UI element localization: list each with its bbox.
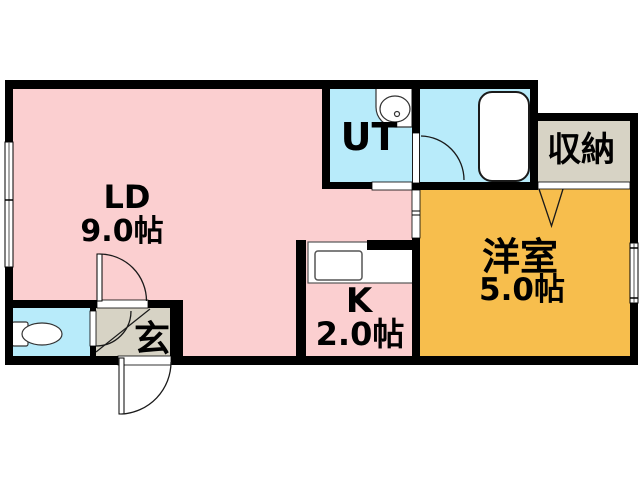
label-entrance: 玄 xyxy=(134,319,170,360)
front-door-leaf xyxy=(119,358,124,414)
floor-plan-canvas: LD 9.0帖 UT 収納 洋室 5.0帖 K 2.0帖 玄 xyxy=(0,0,640,480)
wall-kitchen-left xyxy=(296,240,306,365)
bathroom-door-leaf xyxy=(413,133,420,183)
room-living-dining-bottom-strip xyxy=(182,300,298,358)
utility-door-opening xyxy=(372,182,412,190)
window-left xyxy=(5,142,13,267)
wall-utility-bottom xyxy=(322,182,372,189)
label-storage: 収納 xyxy=(547,130,615,170)
window-right xyxy=(630,243,638,303)
label-utility: UT xyxy=(341,115,398,159)
wall-bottom xyxy=(5,356,638,365)
wall-storage-top xyxy=(530,113,638,121)
label-living-dining-size: 9.0帖 xyxy=(80,214,163,249)
front-door-swing-arc xyxy=(122,362,172,414)
kitchen-sink xyxy=(315,251,362,280)
wall-kitchen-top xyxy=(367,240,420,250)
wall-toilet-top xyxy=(5,300,97,308)
toilet-door-leaf xyxy=(90,311,96,346)
wall-step-vertical xyxy=(530,80,538,190)
toilet-bowl xyxy=(22,323,62,345)
wall-top xyxy=(5,80,538,89)
hallway-area xyxy=(13,185,413,245)
wall-utility-left xyxy=(322,80,330,189)
floor-plan: LD 9.0帖 UT 収納 洋室 5.0帖 K 2.0帖 玄 xyxy=(0,0,640,480)
ld-door-opening xyxy=(97,300,148,308)
wall-entrance-right xyxy=(170,300,183,360)
wall-bathroom-bottom xyxy=(412,182,538,190)
western-room-sliding-door xyxy=(412,190,420,238)
storage-opening xyxy=(538,182,630,189)
label-western-room-size: 5.0帖 xyxy=(479,272,565,308)
label-kitchen-size: 2.0帖 xyxy=(316,315,405,353)
label-living-dining: LD xyxy=(104,178,151,216)
room-living-dining-area xyxy=(13,85,323,190)
bathtub xyxy=(479,92,529,181)
room-living-dining-lower-area xyxy=(13,240,298,302)
ld-door-leaf xyxy=(97,254,102,301)
wall-right xyxy=(630,113,638,365)
